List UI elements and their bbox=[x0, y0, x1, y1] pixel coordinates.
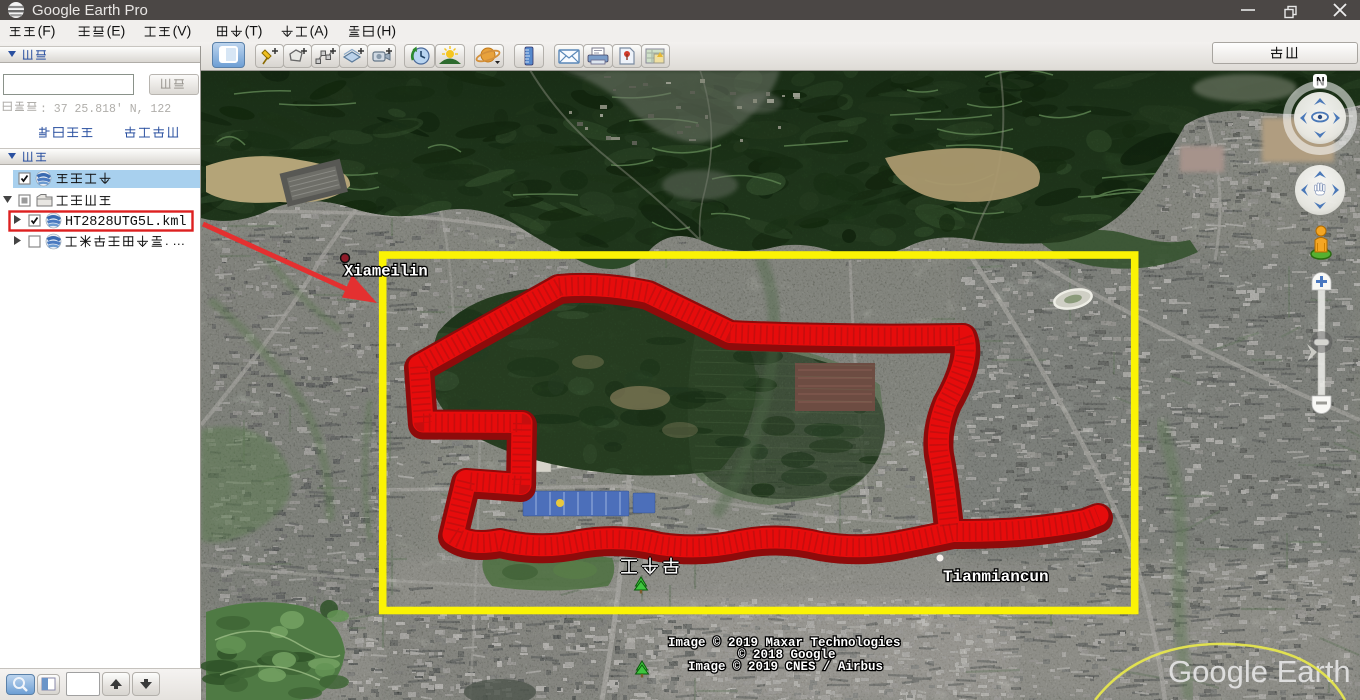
svg-text:(V): (V) bbox=[173, 23, 192, 39]
svg-text:Xiameilin: Xiameilin bbox=[344, 263, 428, 281]
svg-text:(F): (F) bbox=[38, 23, 56, 39]
svg-text:Image © 2019 CNES / Airbus: Image © 2019 CNES / Airbus bbox=[688, 660, 883, 674]
svg-text:Tianmiancun: Tianmiancun bbox=[943, 568, 1049, 586]
svg-text:(H): (H) bbox=[377, 23, 396, 39]
svg-text:(E): (E) bbox=[107, 23, 126, 39]
svg-text:(A): (A) bbox=[310, 23, 329, 39]
svg-text:Google Earth: Google Earth bbox=[1168, 654, 1351, 689]
svg-text:(T): (T) bbox=[245, 23, 263, 39]
